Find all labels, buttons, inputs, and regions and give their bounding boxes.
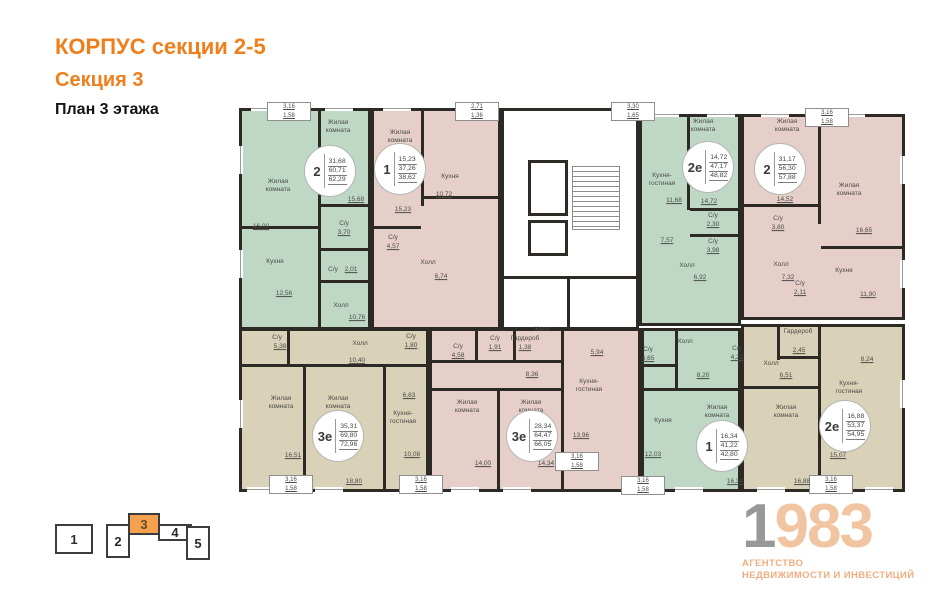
- badge-divider: [842, 409, 843, 443]
- area-value: 13,96: [573, 432, 589, 440]
- room-label: Холл: [534, 326, 549, 334]
- area-value: 4,65: [642, 355, 655, 363]
- room-label: Жилая комната: [269, 395, 294, 411]
- room-label: Кухня- гостиная: [390, 410, 416, 426]
- area-value: 16,65: [856, 227, 872, 235]
- apartment-type: 2: [313, 164, 320, 179]
- area-value: 4,58: [452, 352, 465, 360]
- room-label: Кухня- гостиная: [836, 380, 862, 396]
- wall-segment: [641, 388, 741, 391]
- area-value: 1,80: [405, 342, 418, 350]
- area-figure: 15,23: [398, 156, 417, 165]
- wall-segment: [818, 114, 821, 224]
- balcony-dim-value: 2,71: [471, 103, 483, 111]
- room-label: С/у: [708, 238, 718, 246]
- window: [900, 156, 905, 184]
- balcony-dim-value: 3,16: [821, 109, 833, 117]
- room-label: Кухня: [266, 258, 283, 266]
- balcony-dim-value: 1,65: [627, 112, 639, 120]
- room-label: С/у: [643, 346, 653, 354]
- wall-segment: [818, 324, 821, 492]
- room-label: С/у: [406, 333, 416, 341]
- room-label: Гардероб: [784, 328, 813, 336]
- area-value: 2,11: [794, 289, 806, 297]
- wall-segment: [429, 360, 563, 363]
- section-block-5[interactable]: 5: [186, 526, 210, 560]
- area-value: 1,38: [519, 344, 532, 352]
- window: [675, 487, 703, 492]
- area-figure: 66,05: [533, 441, 552, 450]
- apartment-badge[interactable]: 2е14,7247,1748,82: [682, 141, 734, 193]
- wall-segment: [429, 388, 561, 391]
- apartment-badge[interactable]: 3е28,3464,4766,05: [506, 410, 558, 462]
- header: КОРПУС секции 2-5 Секция 3 План 3 этажа: [55, 34, 266, 119]
- room-label: С/у: [328, 266, 338, 274]
- area-figure: 14,72: [709, 154, 728, 163]
- room-label: С/у: [453, 343, 463, 351]
- apartment-type: 1: [705, 439, 712, 454]
- wall-segment: [741, 204, 818, 207]
- apartment-2-rooms-top-right[interactable]: [741, 114, 905, 320]
- area-figure: 38,62: [398, 174, 417, 183]
- area-value: 1,91: [489, 344, 502, 352]
- wall-segment: [501, 276, 639, 279]
- area-value: 14,00: [475, 460, 491, 468]
- area-figure: 31,68: [328, 158, 347, 167]
- room-label: Кухня- гостиная: [576, 378, 602, 394]
- wall-segment: [321, 280, 371, 283]
- section-block-2[interactable]: 2: [106, 524, 130, 558]
- balcony-dim-value: 3,16: [571, 453, 583, 461]
- window: [451, 487, 479, 492]
- balcony-dim-value: 3,30: [627, 103, 639, 111]
- balcony-dimensions: 3,161,58: [267, 102, 311, 121]
- apartment-badge[interactable]: 115,2337,2638,62: [374, 143, 426, 195]
- floor-subtitle: План 3 этажа: [55, 101, 266, 119]
- area-value: 6,92: [694, 274, 707, 282]
- area-value: 15,07: [830, 452, 846, 460]
- badge-divider: [324, 154, 325, 188]
- area-value: 12,03: [645, 451, 661, 459]
- room-label: С/у: [732, 345, 742, 353]
- wall-segment: [239, 364, 429, 367]
- area-figure: 48,82: [709, 172, 728, 181]
- area-value: 11,68: [666, 197, 682, 205]
- wall-segment: [239, 226, 319, 229]
- area-figure: 60,71: [328, 167, 347, 176]
- agency-logo: 1983 АГЕНТСТВО НЕДВИЖИМОСТИ И ИНВЕСТИЦИЙ: [742, 498, 914, 582]
- apartment-areas: 31,6860,7162,29: [328, 158, 347, 185]
- area-value: 4,22: [731, 354, 744, 362]
- floor-plan: 3,161,582,711,363,301,653,161,583,161,58…: [237, 100, 907, 498]
- area-value: 14,72: [701, 198, 717, 206]
- area-value: 18,80: [346, 478, 362, 486]
- area-value: 6,74: [435, 273, 448, 281]
- balcony-dimensions: 3,161,58: [269, 475, 313, 494]
- balcony-dimensions: 3,161,58: [805, 108, 849, 127]
- balcony-dim-value: 1,58: [637, 486, 649, 494]
- area-figure: 35,31: [339, 423, 358, 432]
- balcony-dim-value: 1,58: [821, 118, 833, 126]
- room-label: Кухня: [441, 173, 458, 181]
- area-value: 4,57: [387, 243, 400, 251]
- window: [503, 487, 531, 492]
- balcony-dimensions: 2,711,36: [455, 102, 499, 121]
- apartment-areas: 31,1756,3057,88: [778, 156, 797, 183]
- wall-segment: [321, 248, 371, 251]
- window: [900, 260, 905, 288]
- area-value: 10,76: [349, 314, 365, 322]
- section-block-1[interactable]: 1: [55, 524, 93, 554]
- apartment-areas: 16,3441,2242,80: [720, 433, 739, 460]
- area-figure: 56,30: [778, 165, 797, 174]
- area-figure: 57,88: [778, 174, 797, 183]
- elevator-shaft: [528, 160, 568, 216]
- window: [761, 112, 789, 117]
- room-label: Кухня- гостиная: [649, 172, 675, 188]
- badge-divider: [705, 150, 706, 184]
- wall-segment: [321, 204, 371, 207]
- area-figure: 69,80: [339, 432, 358, 441]
- area-value: 7,57: [661, 237, 674, 245]
- area-value: 16,00: [253, 223, 269, 231]
- area-value: 14,34: [538, 460, 554, 468]
- balcony-dimensions: 3,301,65: [611, 102, 655, 121]
- room-label: Холл: [420, 259, 435, 267]
- room-label: Кухня: [654, 417, 671, 425]
- apartment-2e-top-right[interactable]: [639, 114, 741, 326]
- area-value: 15,23: [395, 206, 411, 214]
- area-value: 16,88: [794, 478, 810, 486]
- balcony-dimensions: 3,161,58: [621, 476, 665, 495]
- page: КОРПУС секции 2-5 Секция 3 План 3 этажа …: [0, 0, 941, 600]
- wall-segment: [641, 364, 677, 367]
- apartment-areas: 28,3464,4766,05: [533, 423, 552, 450]
- badge-divider: [529, 419, 530, 453]
- area-value: 15,68: [348, 196, 364, 204]
- window: [900, 380, 905, 408]
- apartment-badge[interactable]: 231,6860,7162,29: [304, 145, 356, 197]
- balcony-dim-value: 1,58: [283, 112, 295, 120]
- window: [238, 250, 243, 278]
- balcony-dim-value: 3,16: [285, 476, 297, 484]
- section-title: Секция 3: [55, 69, 266, 92]
- badge-divider: [716, 429, 717, 463]
- logo-digits-peach: 983: [774, 492, 871, 561]
- area-value: 6,83: [403, 392, 416, 400]
- area-value: 16,34: [727, 478, 743, 486]
- wall-segment: [741, 386, 818, 389]
- apartment-2e-bottom-right[interactable]: [741, 324, 905, 492]
- area-figure: 41,22: [720, 442, 739, 451]
- area-value: 2,01: [345, 266, 358, 274]
- area-figure: 16,34: [720, 433, 739, 442]
- area-value: 8,36: [526, 371, 539, 379]
- room-label: Жилая комната: [455, 399, 480, 415]
- window: [238, 400, 243, 428]
- window: [651, 112, 679, 117]
- room-label: Жилая комната: [774, 404, 799, 420]
- balcony-dim-value: 3,16: [283, 103, 295, 111]
- room-label: Холл: [677, 338, 692, 346]
- badge-divider: [335, 419, 336, 453]
- staircase: [572, 166, 620, 230]
- room-label: С/у: [795, 280, 805, 288]
- apartment-type: 3е: [318, 429, 332, 444]
- window: [383, 106, 411, 111]
- wall-segment: [690, 234, 741, 237]
- logo-subtitle-line2: НЕДВИЖИМОСТИ И ИНВЕСТИЦИЙ: [742, 570, 914, 582]
- area-figure: 72,96: [339, 441, 358, 450]
- room-label: Гардероб: [511, 335, 540, 343]
- area-value: 10,40: [349, 357, 365, 365]
- room-label: Жилая комната: [266, 178, 291, 194]
- area-figure: 31,17: [778, 156, 797, 165]
- room-label: Жилая комната: [775, 118, 800, 134]
- room-label: С/у: [773, 215, 783, 223]
- area-value: 6,51: [780, 372, 793, 380]
- wall-segment: [318, 226, 321, 330]
- room-label: С/у: [339, 220, 349, 228]
- area-figure: 37,26: [398, 165, 417, 174]
- apartment-type: 1: [383, 162, 390, 177]
- building-title: КОРПУС секции 2-5: [55, 34, 266, 60]
- area-value: 14,52: [777, 196, 793, 204]
- badge-divider: [774, 152, 775, 186]
- apartment-type: 2е: [825, 419, 839, 434]
- area-value: 2,45: [793, 347, 806, 355]
- room-label: Жилая комната: [326, 119, 351, 135]
- wall-segment: [690, 208, 741, 211]
- room-label: Холл: [763, 360, 778, 368]
- logo-year: 1983: [742, 498, 914, 555]
- window: [238, 146, 243, 174]
- room-label: С/у: [490, 335, 500, 343]
- room-label: С/у: [272, 334, 282, 342]
- area-value: 3,98: [707, 247, 720, 255]
- elevator-shaft: [528, 220, 568, 256]
- apartment-type: 2: [763, 162, 770, 177]
- wall-segment: [475, 328, 478, 362]
- area-figure: 42,80: [720, 451, 739, 460]
- apartment-badge[interactable]: 2е16,8853,3754,95: [819, 400, 871, 452]
- apartment-badge[interactable]: 3е35,3169,8072,96: [312, 410, 364, 462]
- area-figure: 53,37: [846, 422, 865, 431]
- wall-segment: [777, 356, 820, 359]
- badge-divider: [394, 152, 395, 186]
- area-figure: 54,95: [846, 431, 865, 440]
- area-value: 5,94: [591, 349, 604, 357]
- room-label: Жилая комната: [705, 404, 730, 420]
- room-label: Жилая комната: [691, 118, 716, 134]
- apartment-areas: 16,8853,3754,95: [846, 413, 865, 440]
- logo-subtitle: АГЕНТСТВО НЕДВИЖИМОСТИ И ИНВЕСТИЦИЙ: [742, 558, 914, 582]
- room-label: Холл: [773, 261, 788, 269]
- apartment-areas: 15,2337,2638,62: [398, 156, 417, 183]
- area-value: 16,51: [285, 452, 301, 460]
- wall-segment: [287, 328, 290, 366]
- room-label: С/у: [708, 212, 718, 220]
- balcony-dim-value: 1,58: [285, 485, 297, 493]
- balcony-dim-value: 1,58: [571, 462, 583, 470]
- apartment-type: 3е: [512, 429, 526, 444]
- balcony-dim-value: 3,16: [637, 477, 649, 485]
- window: [315, 487, 343, 492]
- apartment-badge[interactable]: 116,3441,2242,80: [696, 420, 748, 472]
- window: [707, 112, 735, 117]
- area-figure: 47,17: [709, 163, 728, 172]
- area-value: 5,38: [274, 343, 287, 351]
- room-label: Холл: [352, 340, 367, 348]
- apartment-type: 2е: [688, 160, 702, 175]
- balcony-dim-value: 1,36: [471, 112, 483, 120]
- room-label: Холл: [333, 302, 348, 310]
- area-value: 11,90: [860, 291, 876, 299]
- area-figure: 64,47: [533, 432, 552, 441]
- wall-segment: [567, 279, 570, 330]
- room-label: С/у: [388, 234, 398, 242]
- area-value: 10,08: [404, 451, 420, 459]
- balcony-dim-value: 3,16: [825, 476, 837, 484]
- wall-segment: [371, 226, 421, 229]
- section-block-3[interactable]: 3: [128, 513, 160, 535]
- apartment-2-rooms-top-left[interactable]: [239, 108, 371, 330]
- balcony-dimensions: 3,161,58: [399, 475, 443, 494]
- balcony-dimensions: 3,161,58: [555, 452, 599, 471]
- wall-segment: [513, 328, 516, 362]
- balcony-dim-value: 3,16: [415, 476, 427, 484]
- area-figure: 62,29: [328, 176, 347, 185]
- wall-segment: [821, 246, 905, 249]
- area-value: 12,56: [276, 290, 292, 298]
- room-label: Жилая комната: [326, 395, 351, 411]
- area-figure: 28,34: [533, 423, 552, 432]
- room-label: Кухня: [835, 267, 852, 275]
- wall-segment: [383, 367, 386, 492]
- wall-segment: [497, 390, 500, 492]
- area-value: 10,72: [436, 191, 452, 199]
- window: [325, 106, 353, 111]
- room-label: Жилая комната: [837, 182, 862, 198]
- balcony-dim-value: 1,58: [415, 485, 427, 493]
- logo-digit-gray: 1: [742, 492, 774, 561]
- area-value: 2,30: [707, 221, 720, 229]
- room-label: Холл: [679, 262, 694, 270]
- area-value: 8,24: [861, 356, 874, 364]
- area-value: 3,70: [338, 229, 351, 237]
- area-figure: 16,88: [846, 413, 865, 422]
- area-value: 7,32: [782, 274, 795, 282]
- area-value: 8,20: [697, 372, 710, 380]
- area-value: 3,80: [772, 224, 785, 232]
- apartment-areas: 14,7247,1748,82: [709, 154, 728, 181]
- apartment-areas: 35,3169,8072,96: [339, 423, 358, 450]
- wall-segment: [777, 324, 780, 360]
- apartment-badge[interactable]: 231,1756,3057,88: [754, 143, 806, 195]
- wall-segment: [303, 367, 306, 492]
